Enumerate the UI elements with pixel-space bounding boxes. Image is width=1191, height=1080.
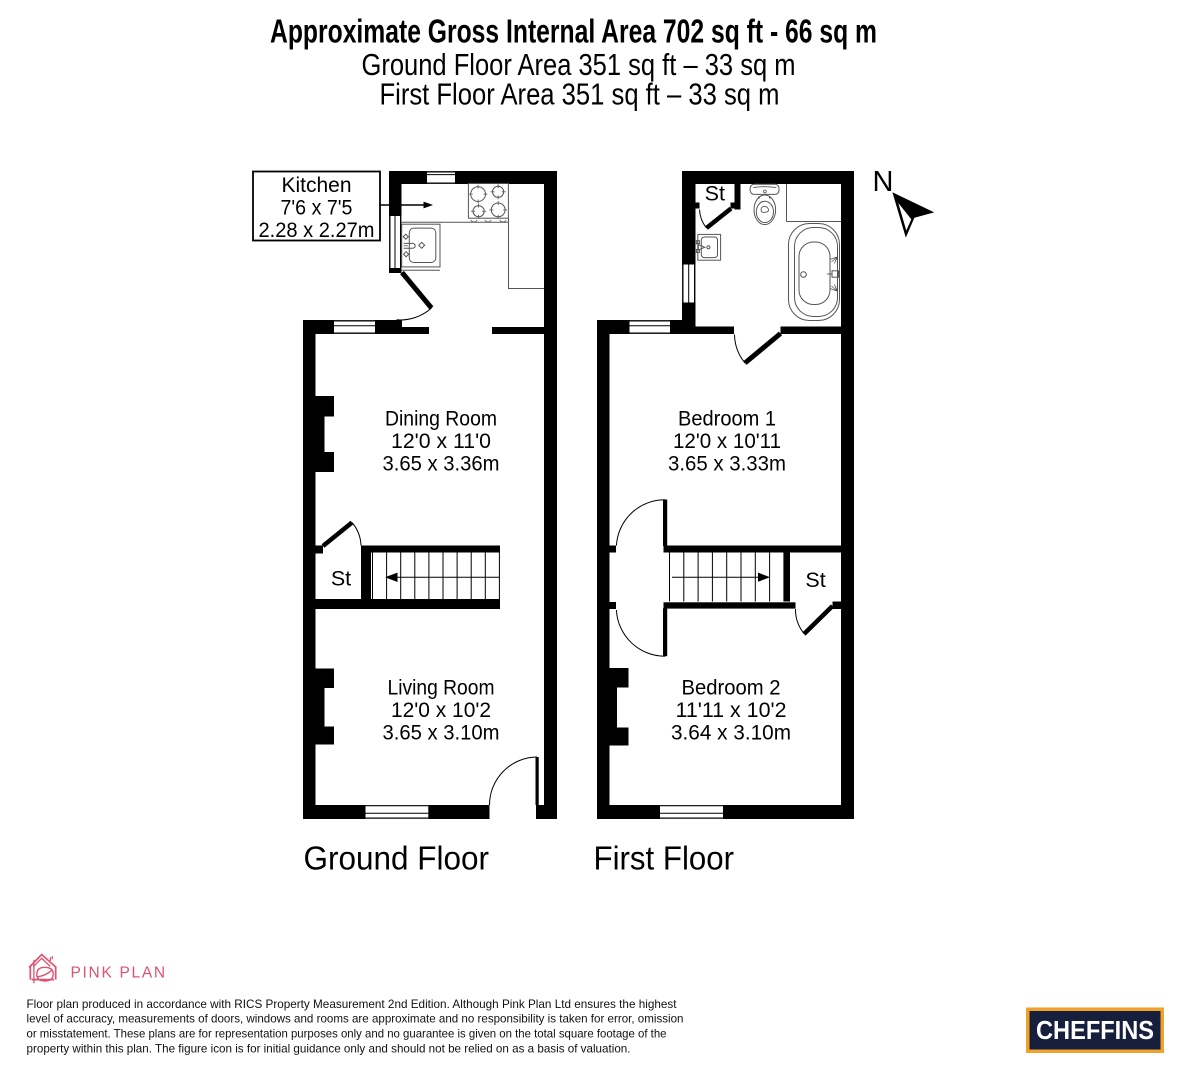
svg-text:7'6 x 7'5: 7'6 x 7'5: [281, 196, 353, 220]
svg-text:Approximate Gross Internal Are: Approximate Gross Internal Area 702 sq f…: [270, 12, 877, 49]
svg-text:Dining Room: Dining Room: [385, 407, 497, 431]
svg-text:Kitchen: Kitchen: [282, 173, 352, 197]
svg-text:Living Room: Living Room: [388, 676, 495, 700]
svg-text:St: St: [705, 182, 725, 206]
svg-text:Bedroom 1: Bedroom 1: [678, 407, 776, 431]
svg-text:St: St: [331, 567, 351, 591]
svg-text:First Floor Area 351 sq ft – 3: First Floor Area 351 sq ft – 33 sq m: [380, 77, 780, 112]
svg-text:3.65 x 3.33m: 3.65 x 3.33m: [668, 452, 786, 476]
svg-text:3.65 x 3.10m: 3.65 x 3.10m: [383, 721, 500, 745]
svg-text:Ground Floor: Ground Floor: [304, 840, 490, 877]
svg-text:Floor plan produced in accorda: Floor plan produced in accordance with R…: [27, 997, 678, 1011]
svg-text:12'0 x 10'11: 12'0 x 10'11: [673, 429, 781, 453]
svg-text:3.64 x 3.10m: 3.64 x 3.10m: [671, 721, 791, 745]
svg-text:2.28 x 2.27m: 2.28 x 2.27m: [259, 218, 375, 242]
svg-text:3.65 x 3.36m: 3.65 x 3.36m: [383, 452, 500, 476]
svg-text:First Floor: First Floor: [594, 840, 735, 877]
svg-text:12'0 x 11'0: 12'0 x 11'0: [391, 429, 491, 453]
svg-text:12'0 x 10'2: 12'0 x 10'2: [391, 698, 491, 722]
svg-text:or misstatement. These plans a: or misstatement. These plans are for rep…: [27, 1027, 667, 1041]
svg-text:CHEFFINS: CHEFFINS: [1036, 1017, 1154, 1045]
svg-text:St: St: [805, 568, 825, 592]
svg-text:Bedroom 2: Bedroom 2: [682, 676, 781, 700]
svg-text:11'11 x 10'2: 11'11 x 10'2: [676, 698, 787, 722]
svg-text:PINK PLAN: PINK PLAN: [71, 965, 167, 982]
svg-text:property within this plan. The: property within this plan. The figure ic…: [27, 1041, 631, 1055]
svg-text:level of accuracy, measurement: level of accuracy, measurements of doors…: [27, 1012, 684, 1026]
svg-text:N: N: [873, 166, 894, 198]
